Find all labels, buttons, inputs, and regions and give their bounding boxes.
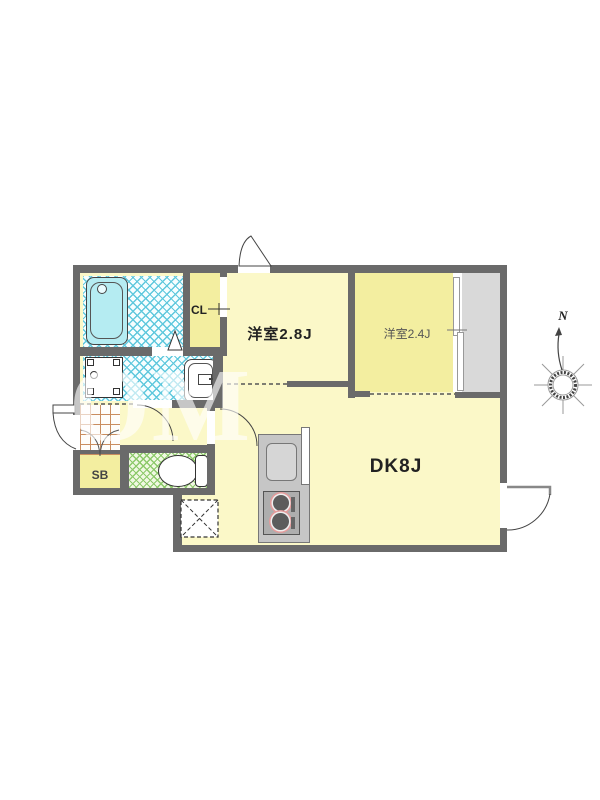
dk-door-swing xyxy=(220,409,257,446)
room-label-dk: DK8J xyxy=(346,456,446,478)
room-label-west-2-4: 洋室2.4J xyxy=(357,325,457,342)
bathroom-door-marker xyxy=(168,331,182,350)
room-label-west-2-8: 洋室2.8J xyxy=(220,323,340,344)
room-label-text: DK8J xyxy=(370,456,423,477)
entrance-door-leaf xyxy=(53,405,75,413)
room-label-text: CL xyxy=(191,303,207,317)
room-label-text: 洋室2.4J xyxy=(384,327,431,341)
compass-north-label: N xyxy=(550,308,576,324)
linework-overlay xyxy=(0,0,600,800)
floorplan-canvas: 洋室2.8J 洋室2.4J DK8J CL SB N OM CORI xyxy=(0,0,600,800)
entrance-inner-swing xyxy=(100,430,119,456)
washroom-door-swing xyxy=(137,405,173,441)
room-label-closet: CL xyxy=(186,303,212,317)
room-label-shoe-box: SB xyxy=(80,468,120,482)
entrance-door-swing xyxy=(53,413,76,449)
entrance-inner-swing xyxy=(81,430,100,456)
exterior-door-leaf xyxy=(507,487,550,495)
room-label-text: SB xyxy=(92,468,109,482)
north-arrow-head xyxy=(555,327,562,336)
exterior-door-swing xyxy=(507,494,550,530)
room-label-text: 洋室2.8J xyxy=(247,326,312,343)
north-label-text: N xyxy=(558,308,567,323)
door-swing-top xyxy=(239,236,271,266)
compass-rose xyxy=(534,327,592,414)
north-arrow xyxy=(558,334,562,370)
